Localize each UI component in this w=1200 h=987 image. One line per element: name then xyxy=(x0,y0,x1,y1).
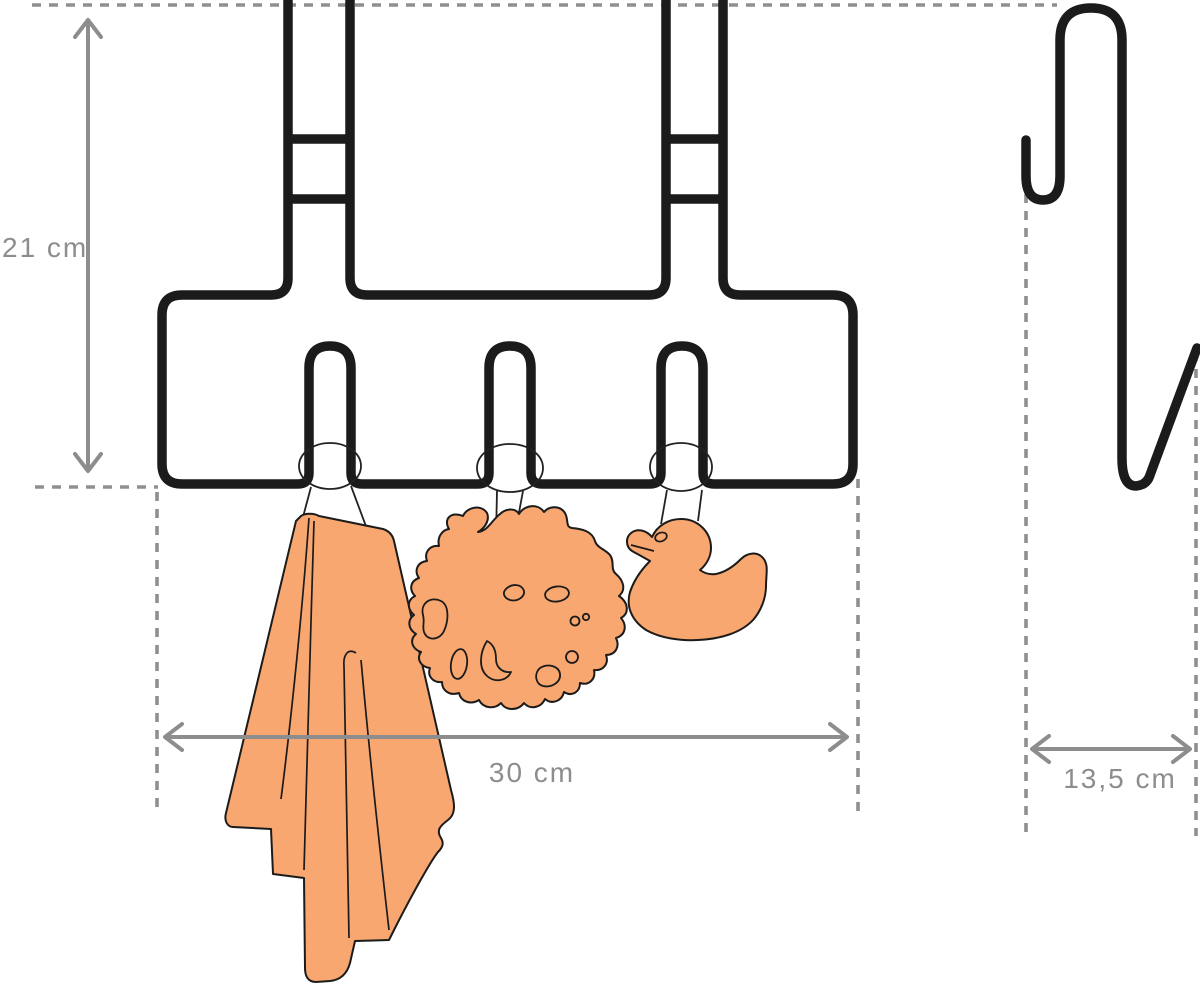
sponge-pore xyxy=(583,614,589,620)
width-dimension-label: 30 cm xyxy=(489,757,575,789)
guide-lines xyxy=(32,5,1196,836)
duck-body xyxy=(627,519,767,640)
sponge-pore xyxy=(504,585,524,600)
rack-top-edge xyxy=(350,0,666,295)
sponge-pore xyxy=(566,651,578,663)
height-dimension-label: 21 cm xyxy=(2,232,88,264)
diagram-canvas xyxy=(0,0,1200,987)
sponge-pore xyxy=(422,599,447,638)
rack-body-outline xyxy=(162,0,853,484)
depth-dimension-arrow xyxy=(1032,736,1190,762)
dimension-arrows xyxy=(75,20,1190,762)
depth-dimension-label: 13,5 cm xyxy=(1063,763,1177,795)
front-view-rack xyxy=(162,0,853,484)
dimension-diagram: 21 cm 30 cm 13,5 cm xyxy=(0,0,1200,987)
side-view-bracket xyxy=(1026,8,1197,486)
bath-sponge xyxy=(409,506,627,709)
rubber-duck xyxy=(627,519,767,640)
bracket-profile xyxy=(1026,8,1197,486)
sponge-pore xyxy=(536,666,560,687)
sponge-pore xyxy=(571,617,580,626)
